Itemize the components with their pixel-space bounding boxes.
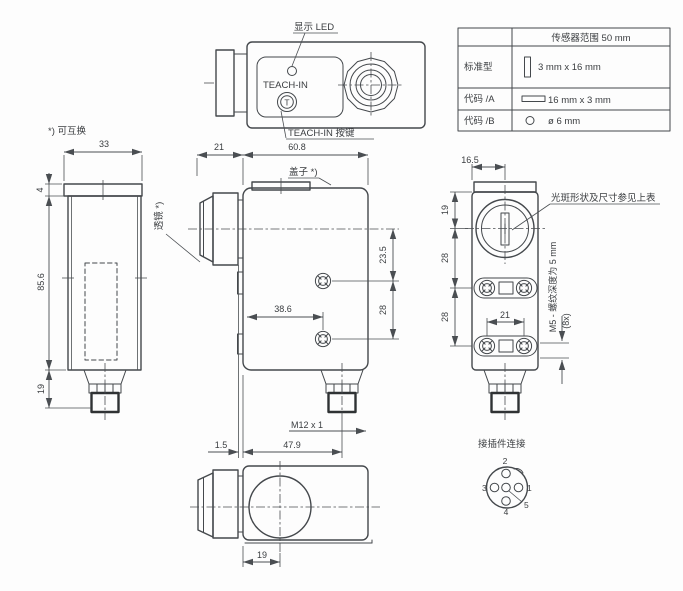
m5-thread-note: M5 - 螺纹深度为 5 mm — [547, 242, 558, 333]
mounting-row — [474, 278, 537, 298]
pinout-diagram: 接插件连接 2 3 1 4 5 — [478, 438, 532, 517]
pin-2 — [502, 469, 511, 478]
dim-19-plug: 19 — [36, 384, 46, 394]
table-header: 传感器范围 50 mm — [551, 32, 630, 44]
housing-left — [68, 196, 141, 370]
table-row-value: 3 mm x 16 mm — [538, 62, 601, 73]
table-row-value: ø 6 mm — [548, 116, 580, 127]
pin-3 — [490, 483, 499, 492]
m12-plug-front — [321, 363, 363, 420]
round-spot-icon — [526, 117, 534, 125]
bottom-view: 19 — [190, 461, 380, 567]
pin-2-label: 2 — [503, 456, 508, 466]
spot-shape-note: 光斑形状及尺寸参见上表 — [551, 192, 656, 204]
housing-front — [243, 188, 368, 370]
drawing-svg: TEACH-IN T 显示 LED TEACH-IN 按键 传感器范围 50 m… — [0, 0, 683, 591]
thread-count-note: (8x) — [561, 313, 571, 329]
dim-21-holes: 21 — [500, 310, 510, 320]
table-row-value: 16 mm x 3 mm — [548, 95, 611, 106]
interchangeable-note: *) 可互换 — [48, 125, 87, 137]
pin-1 — [514, 483, 523, 492]
table-row-label: 代码 /A — [464, 94, 495, 105]
housing-bottom — [243, 466, 368, 540]
spot-size-table: 传感器范围 50 mm 标准型 3 mm x 16 mm 代码 /A 16 mm… — [458, 28, 670, 131]
dim-23-5: 23.5 — [378, 246, 388, 264]
m12-plug-right — [484, 363, 526, 420]
top-view: TEACH-IN T 显示 LED TEACH-IN 按键 — [204, 22, 425, 139]
dim-4: 4 — [35, 187, 45, 192]
connector-top — [338, 52, 404, 118]
lens-knurl-bottom — [213, 470, 238, 538]
dim-28-front: 28 — [378, 305, 388, 315]
pin-5 — [502, 483, 511, 492]
lens-cone-bottom — [198, 473, 213, 537]
m12-thread-note: M12 x 1 — [291, 420, 323, 430]
dim-19-side: 19 — [440, 205, 450, 215]
dim-60-8: 60.8 — [288, 142, 306, 152]
label-area — [85, 263, 117, 360]
table-row-label: 代码 /B — [464, 116, 495, 127]
pin-4-label: 4 — [504, 507, 509, 517]
lens-knurl-top — [216, 50, 234, 116]
teach-button-note: TEACH-IN 按键 — [288, 127, 355, 139]
dim-28-side-2: 28 — [440, 312, 450, 322]
dim-85-6: 85.6 — [36, 273, 46, 291]
teach-button-glyph: T — [284, 98, 289, 108]
dim-28-side-1: 28 — [440, 253, 450, 263]
lens-note: 透镜 *) — [153, 202, 165, 231]
led-note: 显示 LED — [294, 22, 334, 33]
cover-note: 盖子 *) — [289, 166, 318, 178]
dim-1-5: 1.5 — [215, 440, 228, 450]
dim-38-6: 38.6 — [274, 304, 292, 314]
right-view: 16.5 21 19 28 28 — [440, 155, 660, 420]
sensor-dimension-drawing: TEACH-IN T 显示 LED TEACH-IN 按键 传感器范围 50 m… — [0, 0, 683, 591]
mounting-row — [474, 336, 537, 356]
pin-1-label: 1 — [527, 483, 532, 493]
slit-horizontal-icon — [522, 96, 545, 102]
teach-in-label: TEACH-IN — [263, 80, 308, 91]
left-view: *) 可互换 33 4 85.6 19 — [35, 125, 147, 420]
pin-4 — [502, 497, 511, 506]
dim-16-5: 16.5 — [461, 155, 479, 165]
connector-note: 接插件连接 — [478, 438, 526, 450]
m12-plug-left — [84, 363, 126, 420]
front-screw-hole — [315, 331, 330, 346]
slit-vertical-icon — [525, 57, 531, 77]
dim-33: 33 — [99, 139, 109, 149]
pin-3-label: 3 — [482, 483, 487, 493]
led-indicator — [288, 67, 297, 76]
dim-19-bottom: 19 — [257, 550, 267, 560]
table-row-label: 标准型 — [464, 61, 493, 73]
dim-21-lens: 21 — [214, 142, 224, 152]
front-screw-hole — [315, 273, 330, 288]
dim-47-9: 47.9 — [283, 440, 301, 450]
front-view: 21 60.8 盖子 *) 23.5 28 38.6 — [188, 142, 399, 458]
pin-5-label: 5 — [524, 500, 529, 510]
lens-collar-top — [234, 54, 247, 112]
